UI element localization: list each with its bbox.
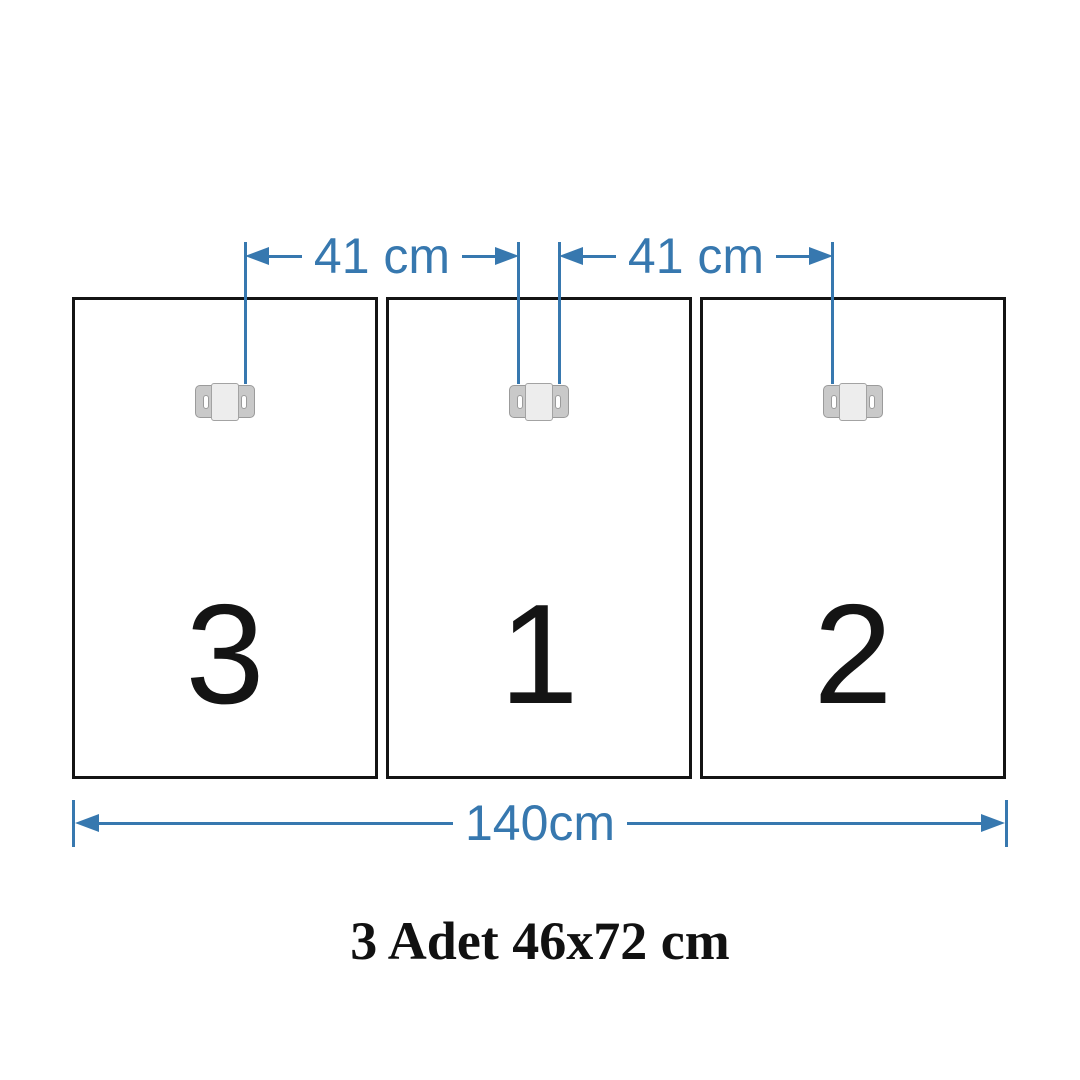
- caption: 3 Adet 46x72 cm: [0, 912, 1080, 971]
- panel-number: 2: [703, 584, 1003, 726]
- dimension-bottom: 140cm: [72, 798, 1008, 848]
- bracket-slot: [517, 395, 523, 409]
- wall-mount-bracket-icon: [823, 383, 883, 421]
- bracket-body: [211, 383, 239, 421]
- bracket-body: [525, 383, 553, 421]
- panel-number: 1: [389, 584, 689, 726]
- dimension-shaft: [583, 255, 616, 258]
- dimension-shaft: [462, 255, 495, 258]
- bracket-slot: [241, 395, 247, 409]
- panel-center: 1: [386, 297, 692, 779]
- dimension-diagram: 3 1 2 41 cm 41 cm: [0, 0, 1080, 1080]
- dimension-shaft: [99, 822, 453, 825]
- dimension-shaft: [269, 255, 302, 258]
- dimension-shaft: [627, 822, 981, 825]
- dimension-tick: [1005, 800, 1008, 847]
- dimension-label: 41 cm: [302, 231, 462, 281]
- dimension-shaft: [776, 255, 809, 258]
- bracket-slot: [869, 395, 875, 409]
- panel-right: 2: [700, 297, 1006, 779]
- arrowhead-left-icon: [75, 814, 99, 832]
- bracket-slot: [555, 395, 561, 409]
- arrowhead-left-icon: [245, 247, 269, 265]
- bracket-slot: [203, 395, 209, 409]
- dimension-label: 41 cm: [616, 231, 776, 281]
- wall-mount-bracket-icon: [195, 383, 255, 421]
- bracket-body: [839, 383, 867, 421]
- arrowhead-left-icon: [559, 247, 583, 265]
- bracket-slot: [831, 395, 837, 409]
- arrowhead-right-icon: [981, 814, 1005, 832]
- arrowhead-right-icon: [495, 247, 519, 265]
- dimension-label: 140cm: [453, 798, 627, 848]
- panel-number: 3: [75, 584, 375, 726]
- wall-mount-bracket-icon: [509, 383, 569, 421]
- dimension-top-left: 41 cm: [245, 231, 519, 281]
- panel-left: 3: [72, 297, 378, 779]
- arrowhead-right-icon: [809, 247, 833, 265]
- dimension-top-right: 41 cm: [559, 231, 833, 281]
